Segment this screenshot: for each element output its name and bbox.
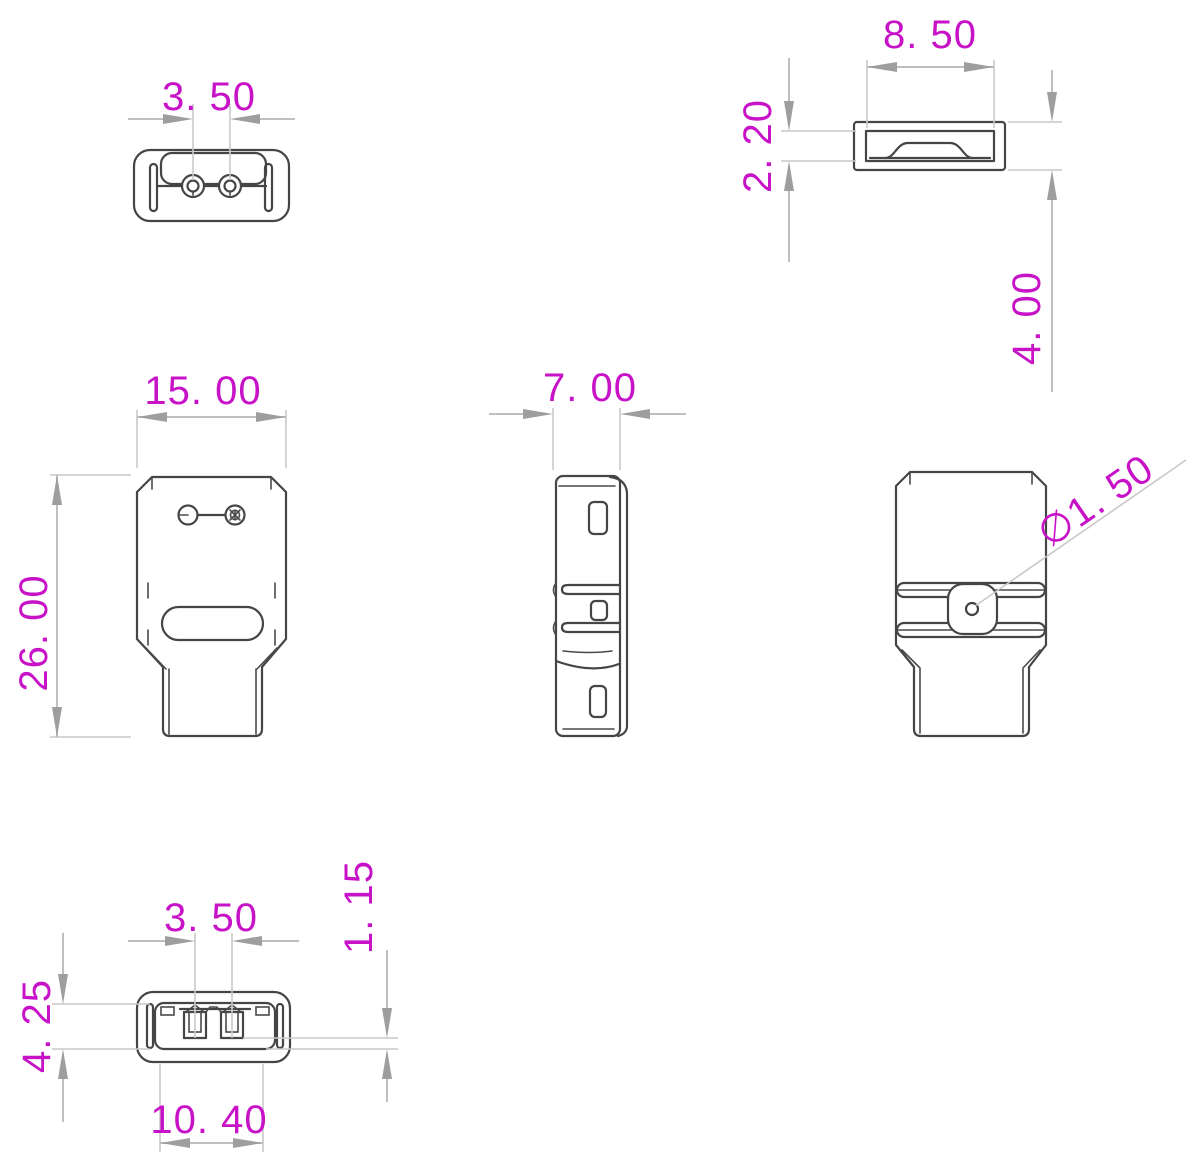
dim-label-cap-inner-height: 2. 20: [736, 99, 780, 193]
dim-slot-width: 10. 40: [150, 1064, 267, 1152]
cap-inner-rect: [866, 131, 994, 161]
dim-label-pin-pitch-bottom: 3. 50: [164, 896, 258, 940]
dim-cavity-depth: 4. 25: [15, 933, 150, 1122]
back-view-geometry: [896, 472, 1046, 736]
dim-label-cavity-depth: 4. 25: [15, 979, 59, 1073]
side-slot-bottom: [590, 686, 606, 717]
arrowhead: [52, 475, 62, 505]
arrowhead: [523, 409, 553, 419]
front-taper-details: [146, 648, 277, 734]
dim-label-cap-width: 8. 50: [883, 13, 977, 57]
dim-front-height: 26. 00: [12, 475, 131, 737]
dim-label-pin-pitch-top: 3. 50: [162, 75, 256, 119]
side-transition-curve: [556, 661, 619, 668]
arrowhead: [1047, 92, 1057, 122]
arrowhead: [382, 1049, 392, 1079]
bottom-view-geometry: [137, 992, 290, 1062]
cap-latch-bump: [886, 143, 972, 158]
dim-front-width: 15. 00: [137, 369, 286, 468]
front-oval-slot: [162, 607, 263, 640]
top-view-geometry: [134, 150, 289, 221]
cap-view: 8. 50 2. 20 4. 00: [736, 13, 1062, 392]
cap-outer-rect: [854, 122, 1005, 170]
front-pin-right: [226, 506, 245, 525]
dim-label-cap-outer-height: 4. 00: [1005, 271, 1049, 365]
front-pin-left: [179, 506, 198, 525]
arrowhead: [137, 412, 167, 422]
dim-label-side-depth: 7. 00: [543, 366, 637, 410]
side-mid-line: [563, 651, 612, 653]
bottom-view: 3. 50 4. 25 10. 40 1. 15: [15, 860, 398, 1152]
arrowhead: [52, 707, 62, 737]
bottom-left-latch-bar: [147, 1004, 153, 1048]
side-view: 7. 00: [489, 366, 686, 736]
cap-view-geometry: [854, 122, 1005, 170]
technical-drawing: 3. 50 8. 50 2. 20: [0, 0, 1200, 1169]
arrowhead: [58, 1049, 68, 1079]
side-slot-middle: [591, 601, 607, 620]
dim-cap-inner-height: 2. 20: [736, 58, 856, 262]
dim-label-front-height: 26. 00: [12, 574, 56, 691]
dim-label-slot-width: 10. 40: [150, 1098, 267, 1142]
front-view-geometry: [137, 477, 286, 736]
side-slot-top: [589, 502, 607, 534]
arrowhead: [867, 62, 897, 72]
dim-label-hole-diameter: ∅1. 50: [1030, 446, 1162, 556]
bottom-corner-tab-left: [161, 1007, 174, 1015]
arrowhead: [964, 62, 994, 72]
dim-label-lip-height: 1. 15: [337, 860, 381, 954]
dim-cap-width: 8. 50: [867, 13, 994, 128]
dim-label-front-width: 15. 00: [144, 369, 261, 413]
arrowhead: [784, 161, 794, 191]
side-lip-edge: [610, 477, 627, 736]
bottom-right-latch-bar: [277, 1004, 283, 1048]
dim-side-depth: 7. 00: [489, 366, 686, 470]
bottom-corner-tab-right: [256, 1007, 269, 1015]
side-view-geometry: [554, 476, 628, 736]
side-rail-band-2: [562, 623, 620, 632]
top-view: 3. 50: [128, 75, 295, 221]
back-view: ∅1. 50: [896, 446, 1186, 736]
arrowhead: [382, 1008, 392, 1038]
dim-cap-outer-height: 4. 00: [1005, 70, 1062, 392]
arrowhead: [784, 101, 794, 131]
arrowhead: [256, 412, 286, 422]
dim-lip-height: 1. 15: [243, 860, 398, 1102]
front-view: 15. 00 26. 00: [12, 369, 286, 737]
arrowhead: [58, 974, 68, 1004]
side-rail-band-1: [562, 585, 620, 594]
drawing-canvas: 3. 50 8. 50 2. 20: [0, 0, 1200, 1169]
arrowhead: [1047, 170, 1057, 200]
back-center-boss: [948, 584, 997, 634]
arrowhead: [620, 409, 650, 419]
